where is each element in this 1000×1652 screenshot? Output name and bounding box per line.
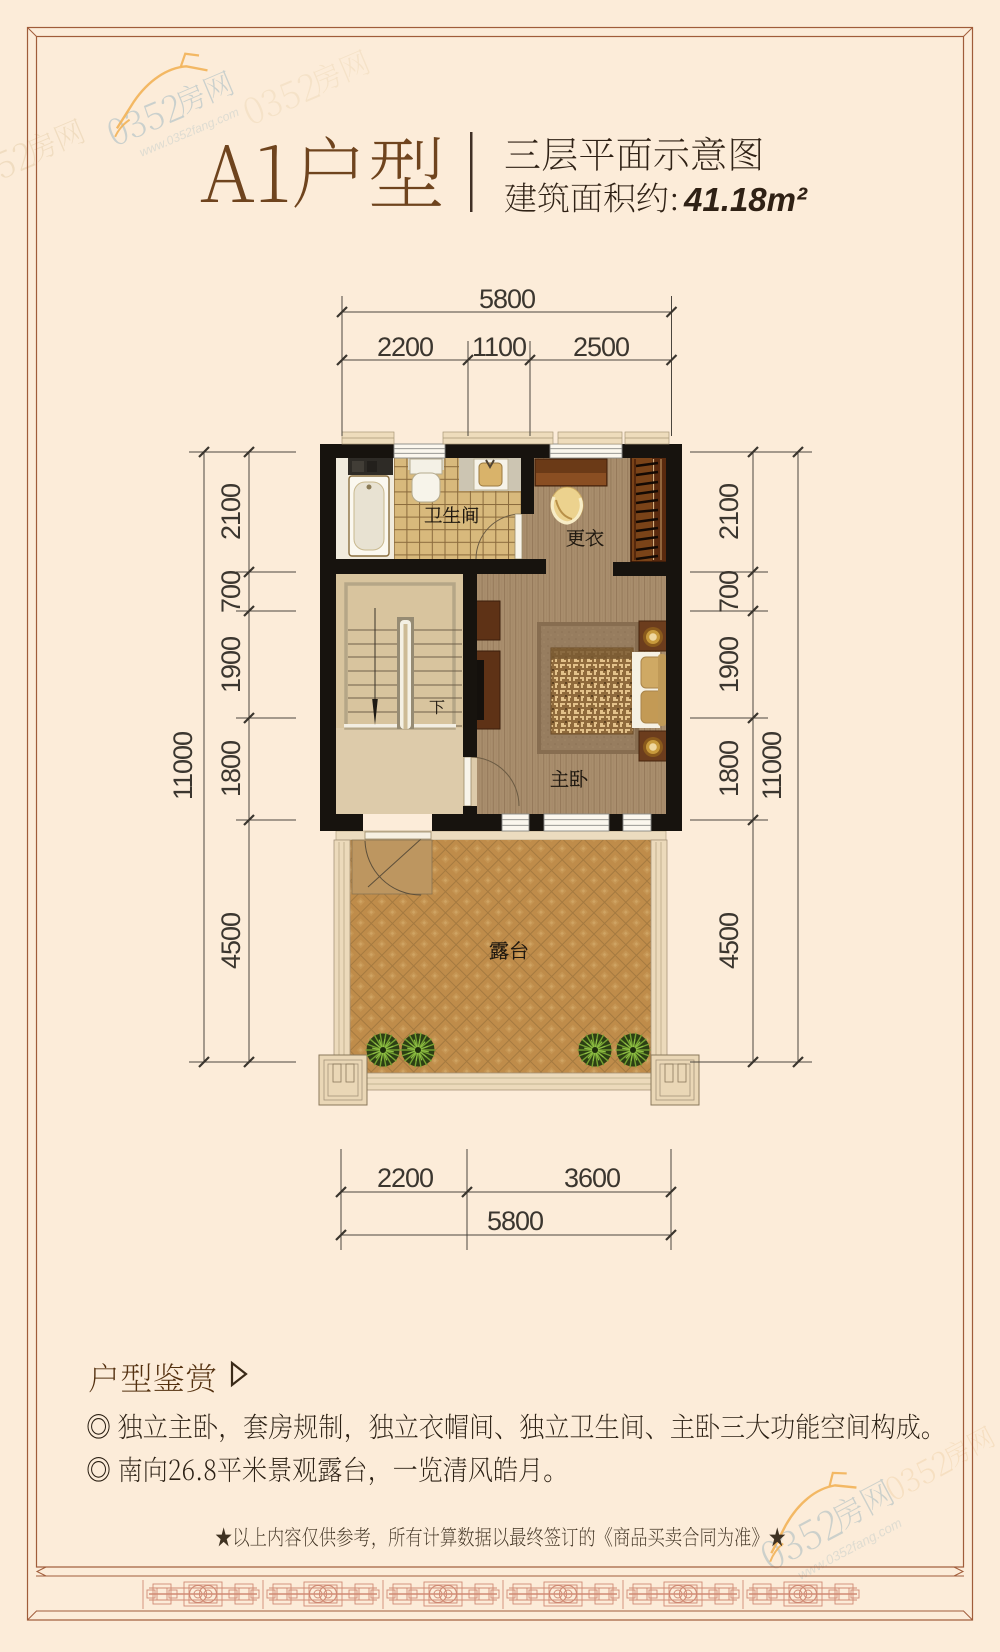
svg-text:1800: 1800 <box>714 741 744 797</box>
svg-text:2500: 2500 <box>573 332 629 362</box>
svg-text:5800: 5800 <box>479 284 535 314</box>
svg-text:2200: 2200 <box>377 332 433 362</box>
svg-text:2100: 2100 <box>216 484 246 540</box>
svg-text:11000: 11000 <box>757 732 787 800</box>
svg-text:700: 700 <box>216 571 246 613</box>
svg-text:2200: 2200 <box>377 1163 433 1193</box>
svg-text:1100: 1100 <box>472 332 526 362</box>
svg-text:3600: 3600 <box>564 1163 620 1193</box>
svg-text:1900: 1900 <box>714 637 744 693</box>
svg-text:4500: 4500 <box>216 913 246 969</box>
svg-text:5800: 5800 <box>487 1206 543 1236</box>
svg-text:4500: 4500 <box>714 913 744 969</box>
svg-text:1900: 1900 <box>216 637 246 693</box>
svg-text:1800: 1800 <box>216 741 246 797</box>
svg-text:11000: 11000 <box>168 732 198 800</box>
svg-text:2100: 2100 <box>714 484 744 540</box>
svg-text:700: 700 <box>714 571 744 613</box>
svg-text:41.18m²: 41.18m² <box>683 181 808 218</box>
